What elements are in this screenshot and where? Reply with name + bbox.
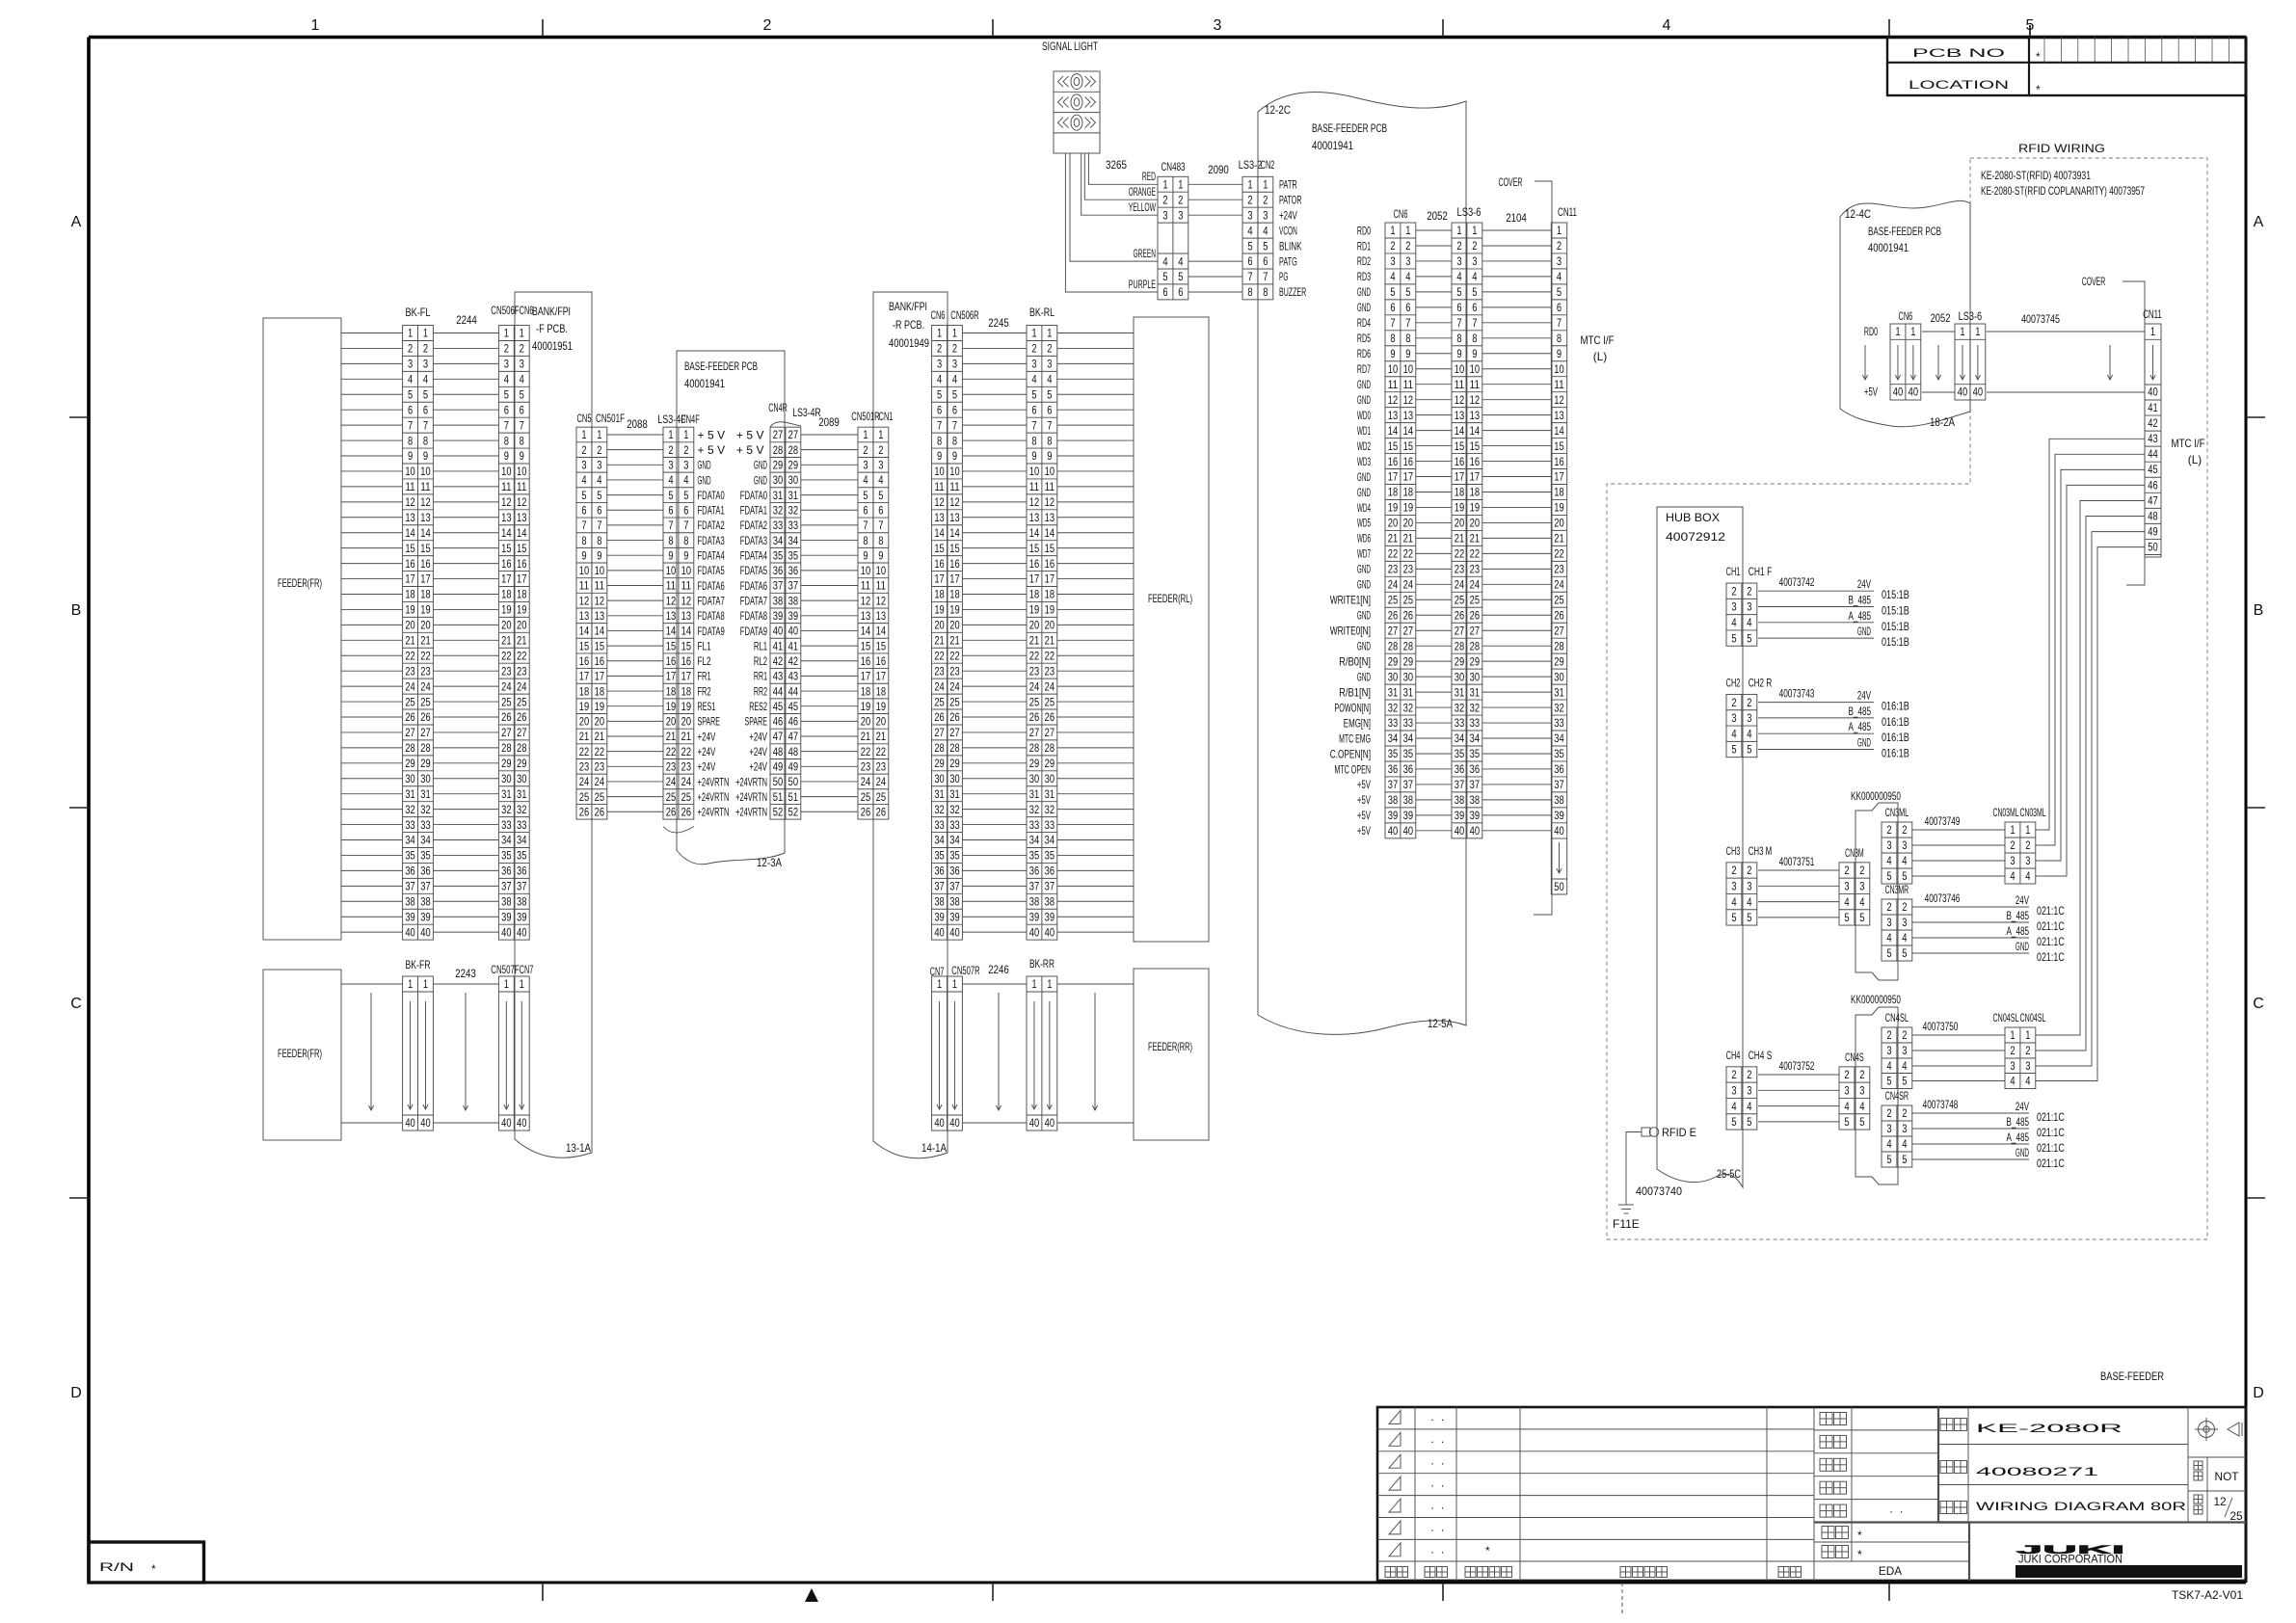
svg-text:15: 15 — [1388, 439, 1399, 453]
svg-text:1: 1 — [1390, 224, 1395, 237]
svg-text:1: 1 — [423, 327, 428, 340]
svg-text:50: 50 — [773, 775, 784, 788]
svg-text:46: 46 — [2148, 478, 2158, 492]
svg-text:31: 31 — [934, 787, 944, 801]
svg-text:GND: GND — [698, 473, 711, 487]
svg-text:39: 39 — [1388, 809, 1398, 822]
svg-text:10: 10 — [666, 564, 677, 577]
svg-text:18: 18 — [861, 684, 871, 698]
svg-text:29: 29 — [1470, 654, 1480, 668]
svg-text:24: 24 — [681, 775, 692, 788]
svg-text:38: 38 — [1554, 793, 1564, 807]
svg-text:40: 40 — [2148, 386, 2158, 399]
svg-text:27: 27 — [420, 726, 430, 739]
svg-text:31: 31 — [1470, 685, 1480, 699]
svg-text:5: 5 — [1731, 911, 1737, 924]
svg-text:18: 18 — [1029, 588, 1040, 601]
svg-text:BASE-FEEDER: BASE-FEEDER — [2100, 1370, 2164, 1383]
svg-text:25: 25 — [949, 695, 960, 708]
svg-text:40001949: 40001949 — [889, 336, 929, 350]
svg-text:34: 34 — [1455, 732, 1465, 745]
svg-text:1: 1 — [1975, 325, 1980, 338]
svg-text:+24VRTN: +24VRTN — [698, 790, 730, 804]
svg-text:21: 21 — [501, 634, 511, 648]
svg-text:25: 25 — [1554, 593, 1564, 606]
svg-text:14: 14 — [876, 625, 887, 638]
svg-text:6: 6 — [1557, 301, 1562, 314]
svg-text:31: 31 — [788, 489, 798, 502]
svg-text:40: 40 — [517, 925, 527, 939]
svg-text:20: 20 — [876, 715, 887, 729]
svg-text:CN04SL: CN04SL — [1993, 1011, 2019, 1024]
svg-text:*: * — [2036, 50, 2041, 64]
svg-text:FDATA6: FDATA6 — [740, 579, 767, 593]
svg-text:3: 3 — [1859, 880, 1865, 893]
svg-text:5: 5 — [1162, 270, 1168, 283]
svg-text:R/N: R/N — [99, 1560, 134, 1574]
svg-text:7: 7 — [668, 519, 673, 532]
svg-text:14: 14 — [1455, 424, 1465, 438]
svg-text:RD2: RD2 — [1357, 254, 1371, 268]
svg-text:PG: PG — [1279, 270, 1288, 283]
svg-text:3: 3 — [1162, 208, 1168, 222]
svg-text:15: 15 — [1403, 439, 1414, 453]
svg-text:4: 4 — [1663, 17, 1671, 34]
svg-text:· ·: · · — [1889, 1504, 1904, 1518]
svg-text:+24V: +24V — [698, 760, 716, 774]
svg-text:SIGNAL LIGHT: SIGNAL LIGHT — [1042, 40, 1098, 53]
svg-text:6: 6 — [1047, 403, 1053, 416]
svg-text:33: 33 — [1045, 818, 1055, 832]
svg-text:34: 34 — [1045, 834, 1055, 847]
svg-text:5: 5 — [1178, 270, 1184, 283]
svg-text:WD1: WD1 — [1357, 424, 1371, 438]
svg-text:10: 10 — [681, 564, 692, 577]
svg-text:15: 15 — [517, 542, 527, 555]
svg-text:25: 25 — [1470, 593, 1481, 606]
svg-text:23: 23 — [1403, 563, 1414, 576]
svg-text:40: 40 — [501, 925, 512, 939]
svg-text:39: 39 — [773, 609, 783, 623]
svg-text:3: 3 — [1178, 208, 1184, 222]
svg-text:19: 19 — [1455, 501, 1464, 515]
svg-text:13: 13 — [405, 511, 415, 524]
svg-text:39: 39 — [1045, 910, 1055, 923]
svg-text:4: 4 — [2025, 1075, 2031, 1088]
svg-text:8: 8 — [683, 534, 689, 547]
svg-text:40001941: 40001941 — [1868, 241, 1909, 254]
svg-text:38: 38 — [1403, 793, 1414, 807]
svg-text:22: 22 — [1554, 547, 1563, 561]
svg-text:25: 25 — [501, 695, 512, 708]
svg-text:1: 1 — [1031, 977, 1036, 991]
svg-text:23: 23 — [1045, 664, 1055, 678]
svg-text:BK-RR: BK-RR — [1029, 957, 1055, 971]
svg-text:38: 38 — [773, 594, 784, 607]
svg-text:8: 8 — [1390, 332, 1396, 345]
svg-text:5: 5 — [683, 489, 689, 502]
svg-text:1: 1 — [952, 977, 957, 991]
svg-text:8: 8 — [1247, 285, 1253, 299]
svg-text:13: 13 — [595, 609, 605, 623]
svg-text:30: 30 — [517, 772, 527, 785]
svg-text:KK000000950: KK000000950 — [1851, 993, 1901, 1006]
svg-text:016:1B: 016:1B — [1882, 715, 1909, 729]
svg-text:21: 21 — [405, 634, 414, 648]
svg-text:5: 5 — [1859, 911, 1865, 924]
svg-text:PATR: PATR — [1279, 178, 1297, 192]
svg-text:20: 20 — [666, 715, 677, 729]
svg-text:41: 41 — [2148, 401, 2157, 414]
svg-text:7: 7 — [581, 519, 586, 532]
svg-text:PURPLE: PURPLE — [1129, 278, 1156, 291]
svg-text:FDATA3: FDATA3 — [698, 534, 725, 547]
svg-text:15: 15 — [681, 639, 692, 652]
svg-text:51: 51 — [773, 790, 783, 804]
svg-text:10: 10 — [595, 564, 605, 577]
svg-text:26: 26 — [517, 710, 527, 724]
svg-text:KE-2080R: KE-2080R — [1976, 1422, 2123, 1435]
svg-text:15: 15 — [666, 639, 677, 652]
svg-text:13: 13 — [501, 511, 512, 524]
svg-text:34: 34 — [1029, 834, 1040, 847]
svg-text:23: 23 — [876, 760, 887, 774]
svg-text:27: 27 — [501, 726, 511, 739]
svg-text:3: 3 — [1886, 916, 1892, 929]
svg-text:28: 28 — [1554, 639, 1564, 652]
svg-text:39: 39 — [420, 910, 430, 923]
svg-text:· ·: · · — [1430, 1545, 1445, 1558]
svg-text:5: 5 — [1844, 1115, 1850, 1129]
svg-text:3: 3 — [581, 459, 587, 472]
svg-text:31: 31 — [1455, 685, 1464, 699]
svg-text:17: 17 — [517, 572, 526, 586]
svg-text:2: 2 — [2010, 1044, 2015, 1057]
svg-text:31: 31 — [517, 787, 526, 801]
svg-text:4: 4 — [2010, 869, 2016, 883]
svg-text:26: 26 — [861, 805, 871, 818]
svg-text:38: 38 — [517, 894, 527, 908]
svg-text:25: 25 — [666, 790, 677, 804]
svg-text:FDATA0: FDATA0 — [698, 489, 725, 502]
svg-text:24: 24 — [1403, 578, 1414, 592]
svg-text:23: 23 — [501, 664, 512, 678]
svg-text:5: 5 — [1844, 911, 1850, 924]
svg-text:38: 38 — [1470, 793, 1481, 807]
svg-text:5: 5 — [1902, 869, 1908, 883]
svg-text:+24VRTN: +24VRTN — [698, 806, 730, 819]
svg-text:14: 14 — [681, 625, 692, 638]
svg-text:9: 9 — [952, 449, 957, 463]
svg-text:CN2: CN2 — [1261, 158, 1275, 172]
svg-text:21: 21 — [1554, 532, 1563, 545]
svg-text:11: 11 — [1554, 378, 1563, 391]
svg-text:2: 2 — [1902, 1106, 1907, 1120]
svg-text:45: 45 — [788, 700, 799, 713]
svg-text:24: 24 — [595, 775, 605, 788]
svg-text:34: 34 — [1554, 732, 1564, 745]
svg-text:5: 5 — [1390, 285, 1396, 299]
svg-text:RFID WIRING: RFID WIRING — [2018, 142, 2105, 155]
svg-text:2: 2 — [1747, 1068, 1751, 1081]
svg-text:BK-RL: BK-RL — [1029, 306, 1055, 319]
svg-text:35: 35 — [405, 849, 415, 863]
svg-text:20: 20 — [1045, 619, 1055, 632]
svg-text:5: 5 — [1886, 869, 1892, 883]
svg-text:23: 23 — [420, 664, 431, 678]
svg-text:2: 2 — [1247, 193, 1252, 206]
svg-text:CN501F: CN501F — [596, 412, 625, 425]
svg-text:021:1C: 021:1C — [2037, 1110, 2065, 1124]
svg-text:19: 19 — [1403, 501, 1413, 515]
svg-text:18: 18 — [876, 684, 887, 698]
svg-text:21: 21 — [1403, 532, 1413, 545]
svg-text:6: 6 — [1178, 285, 1184, 299]
svg-text:C.OPEN[N]: C.OPEN[N] — [1330, 747, 1371, 760]
svg-text:23: 23 — [595, 760, 605, 774]
svg-text:FEEDER(RL): FEEDER(RL) — [1148, 592, 1192, 605]
svg-text:10: 10 — [1470, 362, 1481, 376]
svg-text:36: 36 — [420, 865, 431, 878]
svg-text:1: 1 — [311, 17, 320, 34]
svg-text:CN6: CN6 — [931, 308, 946, 322]
svg-text:15: 15 — [876, 639, 887, 652]
svg-text:RD7: RD7 — [1357, 362, 1371, 376]
svg-text:A_485: A_485 — [1849, 720, 1872, 733]
svg-text:8: 8 — [581, 534, 587, 547]
svg-text:15: 15 — [1455, 439, 1465, 453]
svg-text:3: 3 — [1472, 254, 1478, 268]
svg-text:35: 35 — [501, 849, 512, 863]
svg-text:22: 22 — [420, 649, 430, 662]
svg-text:43: 43 — [773, 670, 784, 683]
svg-text:45: 45 — [2148, 463, 2158, 476]
svg-text:9: 9 — [863, 548, 868, 562]
svg-text:4: 4 — [1902, 1137, 1908, 1151]
svg-text:37: 37 — [517, 880, 526, 893]
svg-text:9: 9 — [408, 449, 413, 463]
svg-text:+5V: +5V — [736, 443, 767, 457]
svg-text:4: 4 — [1047, 373, 1053, 386]
svg-text:3: 3 — [1731, 600, 1737, 614]
svg-text:38: 38 — [420, 894, 431, 908]
svg-text:40: 40 — [1455, 824, 1465, 838]
svg-text:21: 21 — [666, 730, 676, 743]
svg-text:23: 23 — [681, 760, 692, 774]
svg-text:10: 10 — [501, 465, 512, 478]
svg-text:35: 35 — [420, 849, 431, 863]
svg-text:3: 3 — [597, 459, 602, 472]
svg-text:021:1C: 021:1C — [2037, 1141, 2065, 1155]
svg-text:21: 21 — [1470, 532, 1480, 545]
svg-text:17: 17 — [1554, 470, 1563, 484]
svg-text:1: 1 — [2010, 1028, 2015, 1042]
svg-text:4: 4 — [1162, 254, 1168, 268]
svg-text:36: 36 — [949, 865, 960, 878]
svg-text:2090: 2090 — [1208, 163, 1229, 176]
svg-text:23: 23 — [949, 664, 960, 678]
svg-text:· ·: · · — [1430, 1456, 1445, 1470]
svg-text:5: 5 — [1472, 285, 1478, 299]
svg-text:23: 23 — [1388, 563, 1399, 576]
svg-text:7: 7 — [863, 519, 868, 532]
svg-text:GND: GND — [1357, 393, 1371, 407]
svg-text:40: 40 — [1029, 925, 1040, 939]
svg-text:2: 2 — [1747, 864, 1751, 877]
svg-text:25: 25 — [405, 695, 415, 708]
svg-text:40: 40 — [1909, 386, 1919, 399]
svg-text:3: 3 — [952, 358, 958, 371]
svg-text:21: 21 — [876, 730, 886, 743]
svg-text:6: 6 — [581, 503, 587, 517]
svg-text:29: 29 — [1455, 654, 1464, 668]
svg-text:8: 8 — [1456, 332, 1462, 345]
svg-text:10: 10 — [1554, 362, 1564, 376]
svg-text:35: 35 — [1470, 747, 1481, 760]
svg-text:16: 16 — [595, 654, 605, 668]
svg-text:HUB BOX: HUB BOX — [1666, 511, 1720, 524]
svg-text:CH2: CH2 — [1726, 677, 1741, 690]
svg-text:24: 24 — [1388, 578, 1399, 592]
svg-text:44: 44 — [2148, 447, 2158, 461]
svg-text:10: 10 — [420, 465, 431, 478]
svg-text:26: 26 — [579, 805, 590, 818]
svg-text:1: 1 — [937, 977, 942, 991]
svg-text:+24V: +24V — [749, 745, 767, 758]
svg-text:11: 11 — [1029, 480, 1039, 493]
svg-text:40073745: 40073745 — [2021, 312, 2060, 326]
svg-text:30: 30 — [1403, 670, 1414, 683]
svg-text:35: 35 — [1029, 849, 1040, 863]
svg-text:36: 36 — [517, 865, 527, 878]
svg-text:32: 32 — [420, 803, 430, 816]
svg-text:24V: 24V — [1857, 577, 1871, 591]
svg-text:40: 40 — [517, 1116, 527, 1130]
svg-text:33: 33 — [1388, 716, 1399, 730]
svg-text:18: 18 — [1554, 486, 1564, 499]
svg-text:14: 14 — [1388, 424, 1399, 438]
svg-text:36: 36 — [1388, 762, 1399, 776]
svg-text:13: 13 — [934, 511, 945, 524]
svg-text:42: 42 — [773, 654, 783, 668]
svg-text:LS3-6: LS3-6 — [1457, 205, 1482, 219]
svg-text:13: 13 — [1388, 409, 1399, 422]
svg-text:24: 24 — [1045, 679, 1055, 693]
svg-text:016:1B: 016:1B — [1882, 700, 1909, 713]
svg-text:20: 20 — [1554, 517, 1564, 530]
svg-text:7: 7 — [1047, 418, 1052, 432]
svg-text:18-2A: 18-2A — [1930, 415, 1955, 429]
svg-text:5: 5 — [1731, 743, 1737, 757]
svg-text:ORANGE: ORANGE — [1129, 185, 1156, 199]
svg-text:7: 7 — [1472, 316, 1477, 330]
svg-text:2: 2 — [1162, 193, 1167, 206]
svg-text:25: 25 — [517, 695, 527, 708]
svg-text:1: 1 — [504, 327, 509, 340]
svg-text:33: 33 — [1470, 716, 1481, 730]
svg-text:16: 16 — [666, 654, 677, 668]
svg-text:16: 16 — [579, 654, 590, 668]
svg-text:1: 1 — [1405, 224, 1410, 237]
svg-text:5: 5 — [1747, 911, 1752, 924]
svg-text:PATOR: PATOR — [1279, 194, 1302, 207]
svg-text:1: 1 — [520, 977, 524, 991]
svg-text:34: 34 — [420, 834, 431, 847]
svg-text:GND: GND — [1357, 378, 1371, 391]
svg-text:33: 33 — [517, 818, 527, 832]
svg-text:5: 5 — [504, 387, 510, 401]
svg-text:18: 18 — [595, 684, 605, 698]
svg-text:4: 4 — [1456, 270, 1462, 283]
svg-text:22: 22 — [949, 649, 959, 662]
svg-text:4: 4 — [1859, 895, 1865, 909]
svg-text:26: 26 — [1045, 710, 1055, 724]
svg-text:13: 13 — [1455, 409, 1465, 422]
svg-text:22: 22 — [1470, 547, 1480, 561]
svg-text:14: 14 — [420, 526, 431, 540]
svg-text:11: 11 — [501, 480, 511, 493]
svg-text:C: C — [2253, 996, 2264, 1012]
svg-text:8: 8 — [1047, 434, 1053, 447]
svg-text:39: 39 — [934, 910, 944, 923]
svg-text:37: 37 — [1403, 778, 1413, 791]
svg-text:17: 17 — [1029, 572, 1039, 586]
svg-text:30: 30 — [420, 772, 431, 785]
svg-text:6: 6 — [1472, 301, 1478, 314]
svg-text:25: 25 — [2229, 1509, 2243, 1523]
svg-text:33: 33 — [420, 818, 431, 832]
svg-text:39: 39 — [949, 910, 959, 923]
svg-text:50: 50 — [1554, 880, 1564, 893]
svg-text:22: 22 — [934, 649, 944, 662]
svg-text:GND: GND — [1357, 639, 1371, 652]
svg-text:8: 8 — [408, 434, 414, 447]
svg-text:42: 42 — [2148, 416, 2157, 430]
svg-text:25: 25 — [1403, 593, 1414, 606]
svg-text:24: 24 — [1470, 578, 1481, 592]
svg-text:31: 31 — [1403, 685, 1413, 699]
svg-text:4: 4 — [1390, 270, 1396, 283]
svg-text:8: 8 — [952, 434, 958, 447]
svg-text:28: 28 — [501, 741, 512, 755]
svg-text:24: 24 — [934, 679, 945, 693]
svg-text:25: 25 — [1455, 593, 1465, 606]
svg-text:2: 2 — [1886, 900, 1891, 914]
svg-text:6: 6 — [1031, 403, 1037, 416]
svg-text:2: 2 — [863, 443, 868, 457]
svg-text:18: 18 — [1045, 588, 1055, 601]
svg-text:12: 12 — [420, 495, 430, 509]
svg-text:COVER: COVER — [1499, 175, 1523, 189]
svg-text:*: * — [2036, 83, 2041, 96]
svg-text:5: 5 — [937, 387, 943, 401]
svg-text:2052: 2052 — [1427, 209, 1448, 223]
svg-text:18: 18 — [405, 588, 415, 601]
svg-text:20: 20 — [420, 619, 431, 632]
svg-text:R/B0[N]: R/B0[N] — [1339, 654, 1371, 668]
svg-text:FDATA1: FDATA1 — [740, 504, 767, 518]
svg-text:RD4: RD4 — [1357, 316, 1371, 330]
svg-text:14: 14 — [595, 625, 605, 638]
svg-text:20: 20 — [595, 715, 605, 729]
svg-text:20: 20 — [1455, 517, 1465, 530]
svg-text:40: 40 — [934, 925, 945, 939]
svg-text:FDATA7: FDATA7 — [740, 594, 767, 607]
svg-text:+5V: +5V — [1357, 824, 1371, 838]
svg-text:*: * — [1857, 1548, 1862, 1561]
svg-text:6: 6 — [668, 503, 674, 517]
svg-text:4: 4 — [1886, 931, 1892, 945]
